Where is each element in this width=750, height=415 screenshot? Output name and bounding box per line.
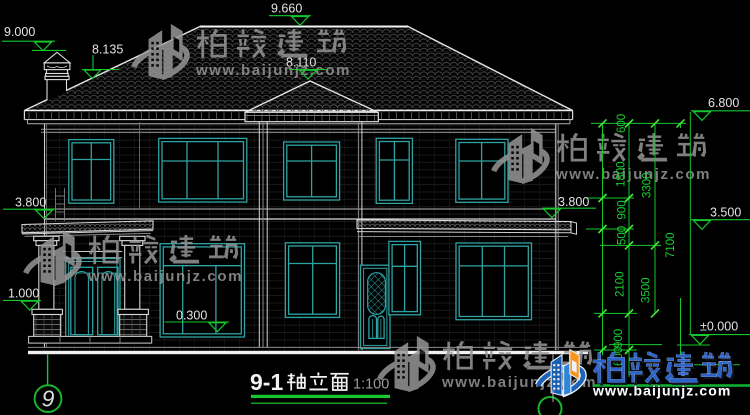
svg-text:3.800: 3.800 (558, 195, 589, 209)
svg-text:www.baijunjz.com: www.baijunjz.com (592, 383, 731, 399)
svg-text:7100: 7100 (665, 232, 677, 258)
svg-text:1800: 1800 (616, 161, 628, 187)
svg-text:500: 500 (617, 226, 629, 245)
svg-text:9: 9 (42, 386, 55, 412)
svg-text:3.800: 3.800 (15, 196, 46, 210)
svg-text:9-1: 9-1 (250, 369, 283, 395)
svg-text:900: 900 (617, 200, 629, 219)
svg-text:±0.000: ±0.000 (700, 320, 738, 334)
svg-text:8.110: 8.110 (286, 56, 316, 70)
svg-text:6.800: 6.800 (708, 96, 739, 110)
svg-text:3500: 3500 (641, 277, 653, 303)
svg-text:9.000: 9.000 (4, 25, 35, 39)
svg-text:3300: 3300 (642, 172, 654, 198)
svg-text:600: 600 (616, 114, 628, 133)
svg-text:3.500: 3.500 (710, 206, 741, 220)
svg-text:0.300: 0.300 (176, 309, 207, 323)
svg-text:1:100: 1:100 (353, 377, 389, 393)
svg-text:8.135: 8.135 (92, 43, 123, 57)
svg-text:9.660: 9.660 (271, 2, 302, 16)
svg-text:900: 900 (613, 329, 625, 348)
svg-text:2100: 2100 (615, 271, 627, 297)
svg-text:1.000: 1.000 (8, 287, 39, 301)
